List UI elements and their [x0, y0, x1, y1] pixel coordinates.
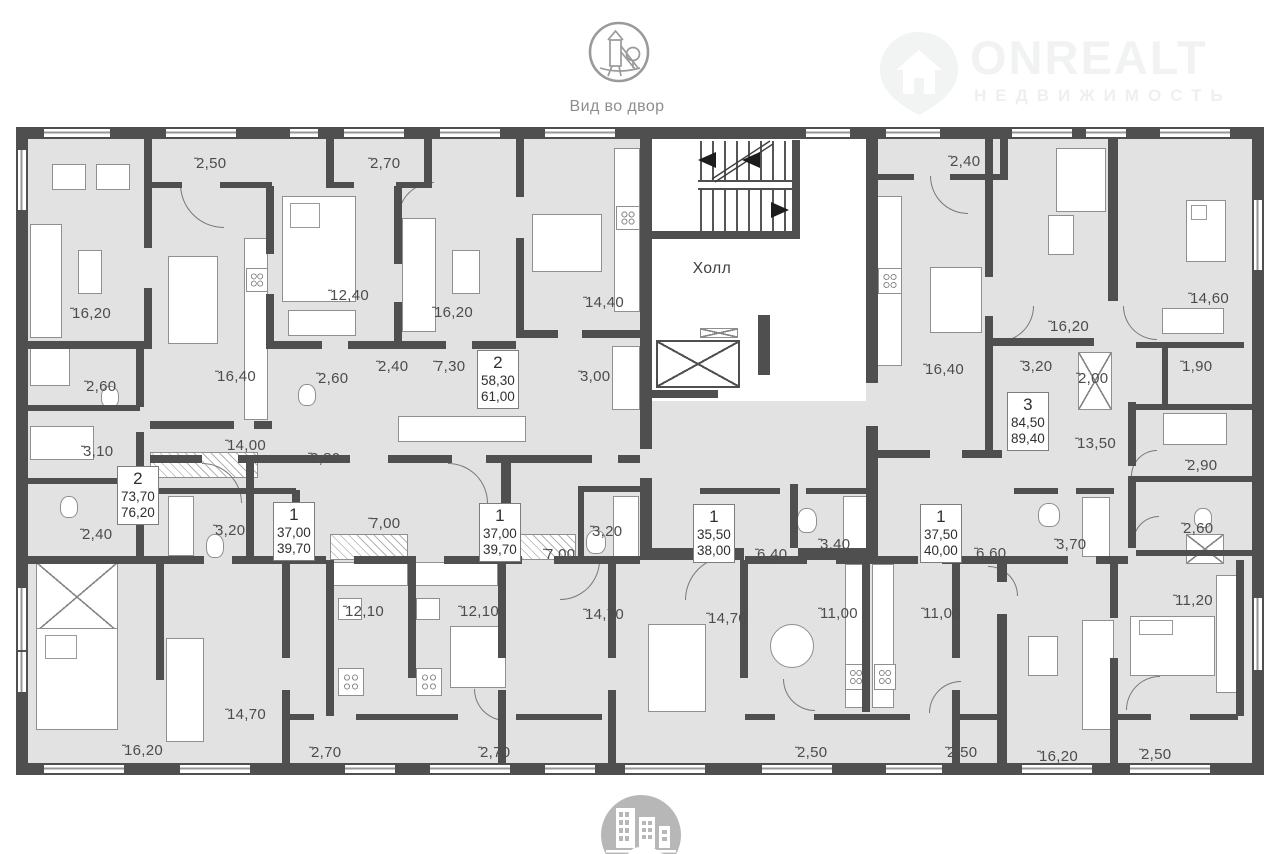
wall-segment: [424, 139, 432, 186]
furniture-item: [648, 624, 706, 712]
room-area-label: 16,20: [432, 305, 436, 308]
toilet: [1038, 503, 1060, 527]
wall-segment: [266, 341, 322, 349]
wall-segment: [1162, 348, 1168, 404]
wall-segment: [1076, 488, 1114, 494]
wall-segment: [1236, 560, 1244, 716]
window-opening: [345, 765, 395, 773]
room-area-label: 2,50: [194, 156, 198, 159]
furniture-item: [532, 214, 602, 272]
room-area-label: 1,90: [1180, 359, 1184, 362]
wall-segment: [1136, 404, 1252, 410]
wall-segment: [394, 341, 446, 349]
room-area-label: 14,40: [583, 295, 587, 298]
wall-segment: [144, 139, 152, 186]
window-opening: [430, 765, 510, 773]
room-area-label: 2,70: [368, 156, 372, 159]
furniture-item: [30, 346, 70, 386]
wall-segment: [266, 186, 274, 254]
wall-segment: [326, 139, 334, 186]
apartment-badge-area-total: 39,70: [483, 542, 517, 558]
window-opening: [1086, 129, 1126, 137]
apartment-badge-area-living: 84,50: [1011, 415, 1045, 431]
wall-segment: [28, 405, 140, 411]
apartment-badge-area-total: 61,00: [481, 389, 515, 405]
window-opening: [44, 765, 124, 773]
room-area-label: 14,70: [225, 707, 229, 710]
room-area-label: 16,20: [122, 743, 126, 746]
wall-segment: [144, 288, 152, 349]
wall-segment: [516, 714, 602, 720]
wall-segment: [608, 690, 616, 763]
wall-segment: [814, 714, 870, 720]
wall-segment: [28, 556, 156, 564]
wall-segment: [962, 450, 1002, 458]
toilet: [797, 508, 817, 533]
wall-segment: [356, 714, 404, 720]
city-street-icon: [598, 792, 684, 854]
room-area-label: 7,00: [543, 547, 547, 550]
wall-segment: [1136, 342, 1244, 348]
apartment-badge-area-total: 38,00: [697, 543, 731, 559]
wall-segment: [396, 182, 432, 188]
wall-segment: [150, 421, 234, 429]
apartment-badge-area-living: 37,00: [483, 526, 517, 542]
apartment-badge-rooms: 1: [495, 506, 504, 526]
apartment-badge: 273,7076,20: [117, 466, 159, 525]
window-opening: [625, 765, 705, 773]
room-area-label: 2,40: [80, 527, 84, 530]
room-area-label: 12,10: [458, 604, 462, 607]
room-area-label: 2,50: [1139, 747, 1143, 750]
bed: [1130, 616, 1215, 676]
wall-segment: [1110, 560, 1118, 618]
wall-segment: [985, 316, 993, 452]
furniture-item: [398, 416, 526, 442]
room-area-label: 16,40: [215, 369, 219, 372]
bed: [1186, 200, 1226, 262]
furniture-item: [452, 250, 480, 294]
window-opening: [886, 129, 940, 137]
round-table: [770, 624, 814, 668]
wall-segment: [745, 714, 775, 720]
window-opening: [180, 765, 250, 773]
wall-segment: [618, 455, 640, 463]
floor-plan-page: Вид во двор ONREALT НЕДВИЖИМОСТЬ Холл 2,…: [0, 0, 1280, 854]
room-area-label: 2,40: [948, 154, 952, 157]
furniture-item: [330, 562, 408, 586]
wall-segment: [472, 341, 516, 349]
wall-segment: [1136, 476, 1252, 482]
wall-segment: [866, 426, 878, 560]
hall-label: Холл: [693, 260, 732, 278]
room-area-label: 14,70: [706, 611, 710, 614]
wall-segment: [498, 560, 506, 658]
window-opening: [344, 129, 404, 137]
window-opening: [545, 765, 595, 773]
room-area-label: 2,50: [945, 745, 949, 748]
room-area-label: 16,20: [70, 306, 74, 309]
window-opening: [18, 150, 26, 210]
furniture-item: [1048, 215, 1074, 255]
wall-segment: [652, 390, 718, 398]
room-area-label: 13,50: [1075, 436, 1079, 439]
wall-segment: [1113, 714, 1151, 720]
room-area-label: 11,00: [818, 606, 822, 609]
window-opening: [1022, 765, 1092, 773]
furniture-item: [614, 148, 640, 312]
floor-plan: Холл 2,502,702,4016,2012,4016,2014,4016,…: [0, 0, 1280, 854]
window-opening: [44, 129, 110, 137]
wall-segment: [578, 486, 640, 492]
wall-segment: [254, 421, 272, 429]
wall-segment: [388, 455, 452, 463]
window-opening: [290, 129, 318, 137]
apartment-badge-rooms: 2: [133, 469, 142, 489]
wall-segment: [640, 139, 652, 449]
room-area-label: 16,20: [1037, 749, 1041, 752]
apartment-badge: 258,3061,00: [477, 350, 519, 409]
wall-segment: [516, 238, 524, 338]
toilet: [60, 496, 78, 518]
apartment-badge: 137,5040,00: [920, 504, 962, 563]
wall-segment: [806, 488, 866, 494]
room-area-label: 16,40: [923, 362, 927, 365]
room-area-label: 16,20: [1048, 319, 1052, 322]
wall-segment: [870, 714, 910, 720]
apartment-badge-area-total: 40,00: [924, 543, 958, 559]
room-area-label: 2,40: [376, 359, 380, 362]
wall-segment: [790, 484, 798, 548]
room-area-label: 2,00: [1076, 371, 1080, 374]
room-area-label: 2,80: [308, 451, 312, 454]
room-area-label: 12,10: [343, 604, 347, 607]
apartment-badge-area-living: 37,50: [924, 527, 958, 543]
wall-segment: [1190, 714, 1238, 720]
wall-segment: [516, 139, 524, 197]
furniture-item: [1082, 497, 1110, 557]
wall-segment: [156, 560, 164, 680]
wall-segment: [1014, 488, 1058, 494]
staircase-direction-arrows: [652, 139, 866, 239]
room-area-label: 2,60: [1181, 521, 1185, 524]
apartment-badge-area-living: 37,00: [277, 525, 311, 541]
wall-segment: [156, 488, 296, 494]
wall-segment: [282, 690, 290, 763]
wall-segment: [878, 450, 930, 458]
bed: [36, 628, 118, 730]
wall-segment: [990, 338, 1094, 346]
wall-segment: [150, 455, 202, 463]
window-opening: [1012, 129, 1072, 137]
stove-icon: [874, 664, 896, 690]
furniture-item: [288, 310, 356, 336]
wall-segment: [700, 488, 780, 494]
wall-segment: [144, 182, 182, 188]
wall-segment: [997, 614, 1007, 763]
furniture-item: [244, 238, 268, 420]
room-area-label: 6,60: [974, 546, 978, 549]
elevator-shaft: [656, 340, 740, 388]
wall-segment: [1110, 658, 1118, 763]
apartment-badge: 384,5089,40: [1007, 392, 1049, 451]
room-area-label: 2,50: [795, 745, 799, 748]
furniture-item: [1056, 148, 1106, 212]
furniture-item: [1028, 636, 1058, 676]
room-area-label: 11,00: [921, 606, 925, 609]
apartment-badge: 137,0039,70: [273, 502, 315, 561]
stove-icon: [416, 668, 442, 696]
wall-segment: [1128, 476, 1136, 548]
wall-segment: [1128, 402, 1136, 466]
wall-segment: [640, 478, 652, 560]
wall-segment: [326, 182, 354, 188]
window-opening: [1254, 200, 1262, 270]
furniture-item: [1163, 413, 1227, 445]
window-opening: [1160, 129, 1230, 137]
furniture-item: [166, 638, 204, 742]
wall-segment: [144, 186, 152, 248]
window-opening: [440, 129, 500, 137]
crossed-closet: [700, 328, 738, 338]
wall-segment: [1000, 139, 1008, 180]
wall-segment: [408, 560, 416, 678]
wall-segment: [348, 341, 394, 349]
wall-segment: [286, 714, 314, 720]
furniture-item: [168, 256, 218, 344]
apartment-badge-rooms: 2: [493, 353, 502, 373]
window-opening: [18, 652, 26, 692]
wall-segment: [950, 174, 1006, 180]
furniture-item: [52, 164, 86, 190]
wall-segment: [872, 174, 914, 180]
wall-segment: [792, 140, 800, 232]
room-area-label: 2,70: [478, 745, 482, 748]
wall-segment: [28, 341, 144, 349]
crossed-closet: [36, 562, 118, 632]
apartment-badge-area-total: 39,70: [277, 541, 311, 557]
room-area-label: 3,20: [213, 523, 217, 526]
apartment-badge-area-total: 76,20: [121, 505, 155, 521]
apartment-badge: 137,0039,70: [479, 503, 521, 562]
wall-segment: [404, 714, 458, 720]
window-opening: [166, 129, 236, 137]
wall-segment: [582, 330, 640, 338]
playground-icon: [588, 16, 650, 90]
room-area-label: 3,20: [1020, 359, 1024, 362]
window-opening: [18, 588, 26, 650]
window-opening: [1254, 598, 1262, 670]
wall-segment: [394, 186, 402, 264]
apartment-badge: 135,5038,00: [693, 504, 735, 563]
stove-icon: [246, 268, 268, 292]
furniture-item: [168, 496, 194, 556]
furniture-item: [414, 562, 498, 586]
wall-segment: [954, 714, 998, 720]
furniture-item: [78, 250, 102, 294]
room-area-label: 2,90: [1185, 458, 1189, 461]
apartment-badge-area-total: 89,40: [1011, 431, 1045, 447]
wall-segment: [220, 182, 272, 188]
stove-icon: [878, 268, 902, 294]
furniture-item: [416, 598, 440, 620]
apartment-badge-area-living: 35,50: [697, 527, 731, 543]
room-area-label: 3,70: [1054, 537, 1058, 540]
wall-segment: [246, 460, 254, 556]
window-opening: [1130, 765, 1210, 773]
wall-segment: [758, 315, 770, 375]
wall-segment: [652, 231, 800, 239]
room-area-label: 14,60: [1188, 291, 1192, 294]
room-area-label: 11,20: [1173, 593, 1177, 596]
apartment-badge-rooms: 1: [936, 507, 945, 527]
stove-icon: [616, 206, 640, 230]
apartment-badge-area-living: 73,70: [121, 489, 155, 505]
room-area-label: 7,30: [433, 359, 437, 362]
room-area-label: 6,40: [755, 547, 759, 550]
room-area-label: 14,70: [583, 607, 587, 610]
wall-segment: [282, 560, 290, 658]
wall-segment: [326, 560, 334, 716]
wall-segment: [354, 556, 416, 564]
wall-segment: [1000, 556, 1068, 564]
room-area-label: 3,10: [81, 444, 85, 447]
furniture-item: [930, 267, 982, 333]
wall-segment: [136, 345, 144, 407]
window-opening: [762, 765, 832, 773]
wall-segment: [578, 486, 584, 556]
wall-segment: [1136, 550, 1252, 556]
room-area-label: 3,40: [818, 537, 822, 540]
window-opening: [545, 129, 615, 137]
furniture-item: [96, 164, 130, 190]
room-area-label: 7,00: [368, 516, 372, 519]
apartment-badge-area-living: 58,30: [481, 373, 515, 389]
window-opening: [886, 765, 942, 773]
room-area-label: 14,00: [225, 438, 229, 441]
furniture-item: [402, 218, 436, 332]
room-area-label: 3,20: [590, 524, 594, 527]
toilet: [298, 384, 316, 406]
wall-segment: [985, 139, 993, 277]
wall-segment: [516, 330, 558, 338]
furniture-item: [30, 224, 62, 338]
stove-icon: [338, 668, 364, 696]
room-area-label: 2,70: [309, 745, 313, 748]
wall-segment: [836, 556, 918, 564]
apartment-badge-rooms: 1: [289, 505, 298, 525]
apartment-badge-rooms: 1: [709, 507, 718, 527]
room-area-label: 2,60: [316, 371, 320, 374]
wall-segment: [862, 560, 870, 712]
wall-segment: [1108, 139, 1118, 301]
wall-segment: [997, 560, 1007, 582]
apartment-badge-rooms: 3: [1023, 395, 1032, 415]
furniture-item: [1162, 308, 1224, 334]
room-area-label: 2,60: [84, 379, 88, 382]
furniture-item: [612, 346, 640, 410]
room-area-label: 12,40: [328, 288, 332, 291]
window-opening: [806, 129, 850, 137]
room-area-label: 3,00: [578, 369, 582, 372]
crossed-closet: [1186, 534, 1224, 564]
